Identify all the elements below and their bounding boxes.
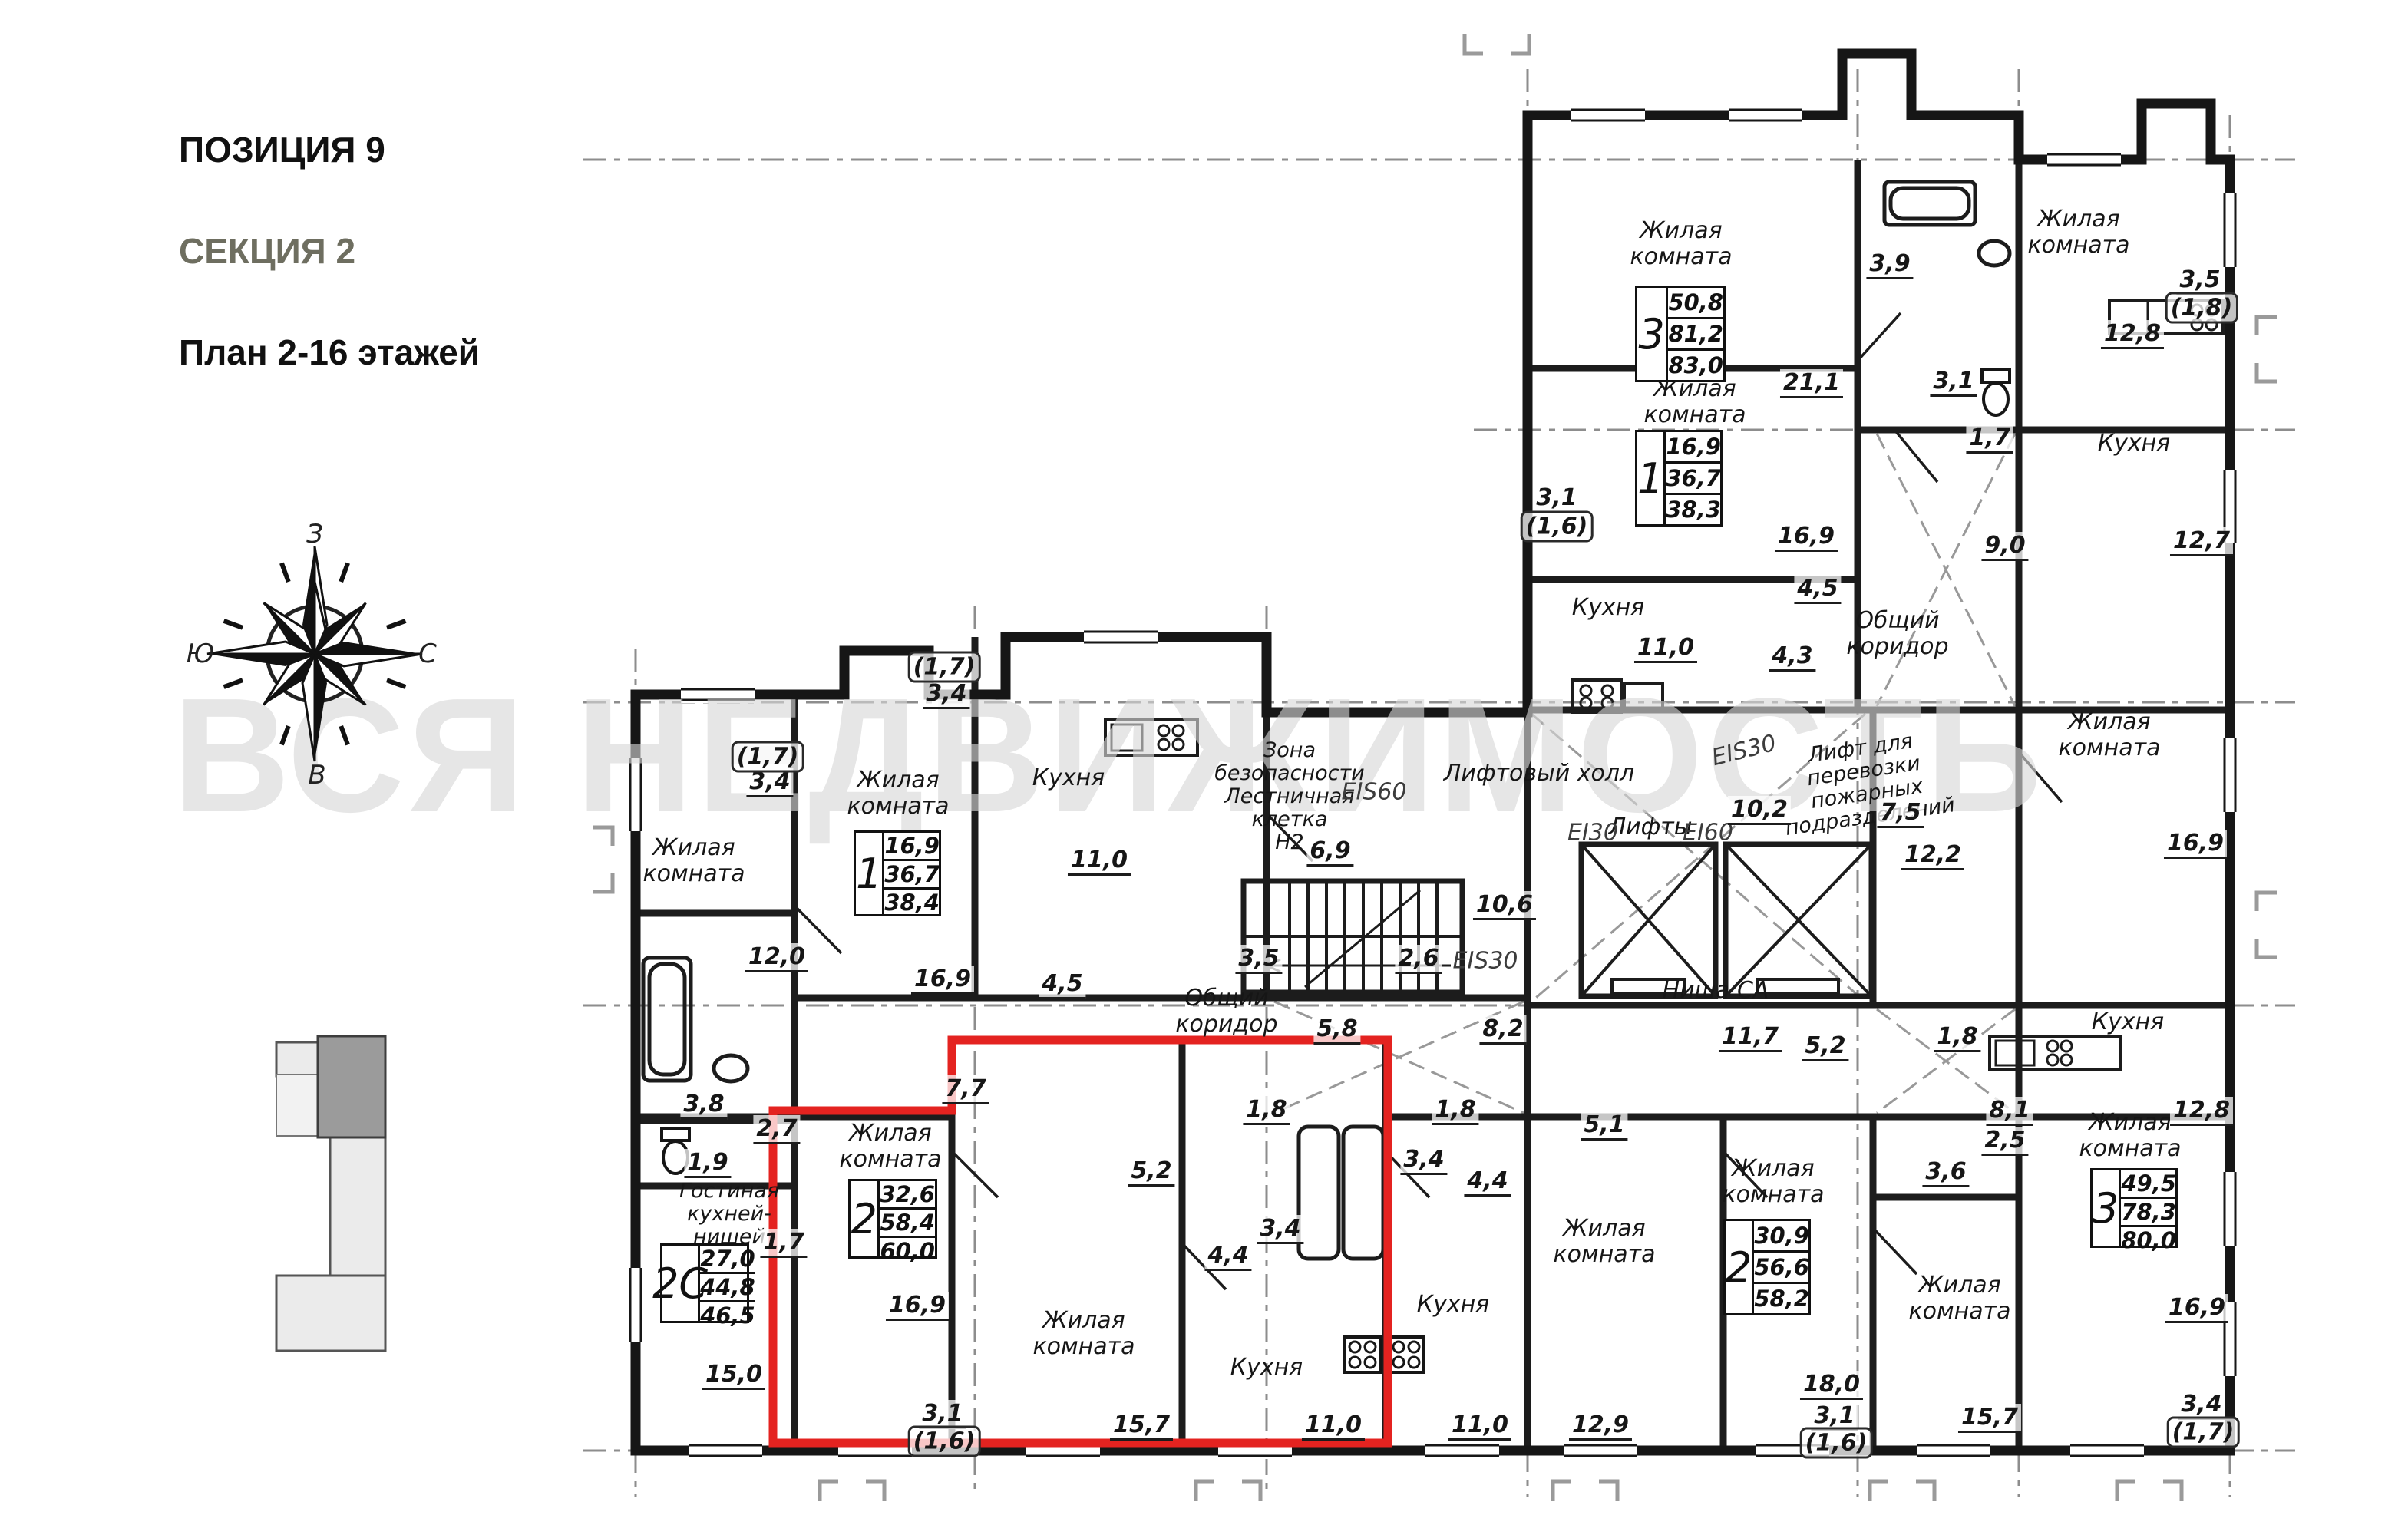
dimension-label: 16,9 [2164,830,2227,859]
apartment-rooms-count: 1 [856,833,884,914]
dimension-label: 3,1 [1533,484,1580,513]
room-label: Жилаякомната [643,835,745,887]
dimension-label: 11,0 [1302,1411,1365,1441]
dimension-label: 11,7 [1719,1023,1782,1052]
dimension-label: 5,1 [1581,1111,1627,1141]
dimension-label: 12,0 [745,943,808,972]
dimension-label: 3,8 [680,1091,727,1120]
dimension-label: 5,2 [1802,1032,1848,1061]
highlighted-section-block [318,1036,385,1137]
dimension-label: 5,8 [1313,1015,1360,1045]
apartment-area-value: 81,2 [1668,319,1723,351]
dimension-label: 10,6 [1473,891,1536,920]
compass-rose: З С В Ю [188,522,441,791]
dimension-label: 2,5 [1981,1127,2028,1156]
dimension-label: 3,5 [2176,266,2223,295]
dimension-label: 18,0 [1800,1371,1863,1400]
dimension-label: (1,6) [1521,511,1594,543]
room-label: Общийкоридор [1846,608,1948,660]
dimension-label: 3,4 [923,680,969,709]
dimension-label: 12,2 [1901,841,1964,870]
dimension-label: 11,0 [1448,1411,1511,1441]
apartment-area-value: 60,0 [880,1238,935,1264]
apartment-rooms-count: 1 [1637,432,1666,524]
apartment-area-value: 16,9 [1666,432,1721,464]
room-label: Кухня [1032,765,1105,791]
fire-rating-label: EI30 [1567,820,1618,847]
dimension-label: 1,9 [684,1149,731,1178]
dimension-label: 4,5 [1794,575,1841,604]
apartment-area-value: 16,9 [884,833,940,861]
plan-subtitle: План 2-16 этажей [179,332,480,373]
apartment-area-value: 56,6 [1754,1253,1809,1284]
room-label: Лифты [1609,814,1693,840]
dimension-label: 5,2 [1128,1157,1174,1187]
dimension-label: (1,6) [908,1426,981,1457]
dimension-label: 10,2 [1728,796,1791,825]
dimension-label: 15,7 [1958,1404,2021,1433]
dimension-label: 3,4 [1257,1215,1303,1244]
compass-label-left: Ю [187,639,215,669]
room-label: Жилаякомната [1909,1273,2011,1325]
apartment-area-stamp: 230,956,658,2 [1723,1219,1811,1315]
apartment-area-stamp: 2С27,044,846,5 [660,1243,749,1323]
apartment-area-value: 78,3 [2121,1199,2176,1227]
dimension-label: 1,7 [1966,424,2013,454]
dimension-label: 16,9 [911,966,974,995]
dimension-label: 3,1 [919,1400,966,1429]
apartment-area-value: 38,4 [884,890,940,916]
room-label: Кухня [2092,1009,2164,1035]
dimension-label: 16,9 [1775,523,1838,552]
dimension-label: 3,4 [2178,1391,2225,1420]
dimension-label: (1,8) [2165,292,2238,324]
dimension-label: 16,9 [2165,1294,2228,1323]
section-title: СЕКЦИЯ 2 [179,230,355,272]
dimension-label: 1,8 [1432,1096,1478,1125]
dimension-label: 7,7 [942,1075,989,1104]
room-label: Жилаякомната [1033,1308,1135,1360]
dimension-label: (1,7) [908,652,981,683]
apartment-area-value: 44,8 [700,1274,755,1302]
page-title: ПОЗИЦИЯ 9 [179,129,385,170]
room-label: Жилаякомната [2028,206,2130,259]
dimension-label: 1,8 [1243,1096,1290,1125]
dimension-label: (1,6) [1800,1428,1873,1459]
dimension-label: 6,9 [1306,837,1353,867]
room-label: Кухня [1417,1292,1489,1318]
room-label: Ниша СА [1663,978,1769,1004]
apartment-area-stamp: 116,936,738,4 [854,830,941,916]
apartment-area-stamp: 116,936,738,3 [1635,430,1723,527]
apartment-area-value: 83,0 [1668,351,1723,380]
dimension-label: 15,7 [1110,1411,1173,1441]
apartment-area-value: 46,5 [700,1302,755,1329]
compass-star-icon [188,522,441,791]
dimension-label: 3,1 [1930,368,1977,397]
apartment-area-value: 58,4 [880,1210,935,1238]
dimension-label: 12,8 [2101,320,2164,349]
apartment-rooms-count: 3 [2093,1170,2121,1246]
dimension-label: 2,6 [1395,945,1442,974]
compass-label-right: С [418,639,437,669]
building-location-map [270,1028,405,1366]
room-label: Кухня [1572,595,1644,621]
apartment-area-value: 38,3 [1666,495,1721,524]
fire-rating-label: EIS60 [1341,779,1406,806]
fire-rating-label: EIS30 [1452,948,1518,975]
floor-plan-page: { "header": { "position": "ПОЗИЦИЯ 9", "… [0,0,2408,1535]
room-label: Жилаякомната [1554,1216,1656,1268]
apartment-area-stamp: 349,578,380,0 [2090,1168,2178,1248]
compass-label-bottom: В [308,760,325,791]
dimension-label: 9,0 [1981,532,2028,561]
apartment-area-value: 27,0 [700,1246,755,1274]
dimension-label: 21,1 [1780,369,1843,398]
dimension-label: 12,9 [1569,1411,1632,1441]
dimension-label: 3,6 [1922,1158,1969,1187]
room-label: Жилаякомната [847,767,950,820]
apartment-area-value: 80,0 [2121,1227,2176,1253]
dimension-label: 15,0 [702,1361,765,1390]
dimension-label: 1,8 [1934,1023,1980,1052]
dimension-label: 12,8 [2170,1097,2233,1126]
apartment-area-value: 58,2 [1754,1284,1809,1313]
dimension-label: 16,9 [886,1292,949,1321]
room-label: Жилаякомната [2059,709,2161,761]
dimension-label: 4,4 [1204,1242,1251,1271]
dimension-label: 3,4 [746,768,793,797]
apartment-rooms-count: 2 [1726,1221,1754,1313]
apartment-area-value: 49,5 [2121,1170,2176,1199]
apartment-area-value: 32,6 [880,1181,935,1210]
room-label: Жилаякомната [1644,376,1746,428]
room-label: Жилаякомната [1630,218,1733,270]
room-label: Кухня [2098,431,2170,457]
room-label: Жилаякомната [2079,1110,2182,1162]
apartment-rooms-count: 2 [851,1181,880,1256]
dimension-label: 4,4 [1464,1167,1511,1197]
apartment-area-stamp: 350,881,283,0 [1635,286,1726,382]
dimension-label: 4,5 [1039,970,1085,999]
dimension-label: 2,7 [753,1115,800,1144]
dimension-label: 8,1 [1986,1097,2033,1126]
room-label: Общийкоридор [1175,985,1277,1038]
dimension-label: 12,7 [2170,527,2233,556]
dimension-label: 7,5 [1877,799,1924,828]
dimension-label: 1,7 [760,1229,807,1258]
dimension-label: 4,3 [1769,642,1815,672]
dimension-label: 3,5 [1235,945,1282,974]
dimension-label: 8,2 [1479,1015,1526,1045]
dimension-label: 3,4 [1400,1146,1447,1175]
fire-rating-label: EI60 [1683,820,1733,847]
room-label: Жилаякомната [840,1121,942,1173]
room-label: Кухня [1230,1355,1303,1381]
dimension-label: 11,0 [1068,847,1131,876]
apartment-area-value: 36,7 [1666,464,1721,495]
apartment-rooms-count: 3 [1637,288,1668,380]
apartment-area-stamp: 232,658,460,0 [848,1179,937,1259]
room-label: Лифт дляперевозкипожарныхподразделений [1774,725,1956,840]
dimension-label: (1,7) [2167,1417,2240,1448]
room-label: Жилаякомната [1723,1156,1825,1208]
apartment-area-value: 30,9 [1754,1221,1809,1253]
dimension-label: 11,0 [1634,634,1697,663]
apartment-area-value: 50,8 [1668,288,1723,319]
dimension-label: 3,9 [1866,250,1913,279]
fire-rating-label: EIS30 [1709,730,1779,772]
room-label: Лифтовый холл [1444,761,1634,787]
compass-label-top: З [306,519,323,550]
dimension-label: (1,7) [732,741,804,773]
apartment-rooms-count: 2С [662,1246,700,1321]
apartment-area-value: 36,7 [884,861,940,890]
